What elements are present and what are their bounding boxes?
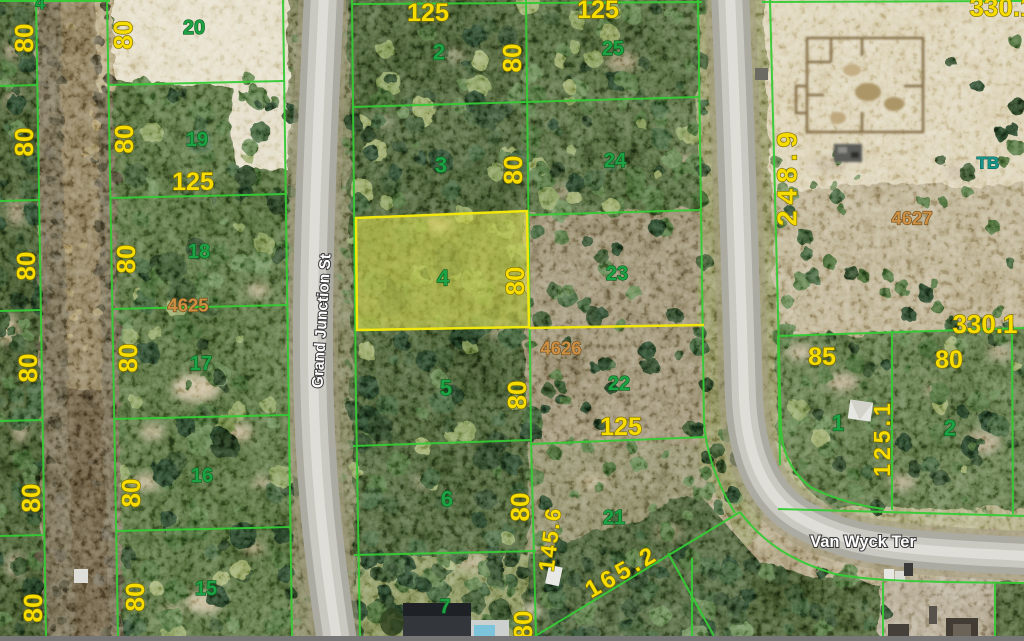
svg-text:15: 15 — [195, 578, 217, 600]
svg-text:80: 80 — [116, 479, 146, 508]
svg-text:24: 24 — [604, 150, 627, 172]
svg-text:80: 80 — [16, 484, 46, 513]
svg-text:2: 2 — [433, 40, 445, 65]
svg-text:80: 80 — [500, 267, 530, 296]
svg-text:17: 17 — [190, 353, 212, 375]
svg-text:80: 80 — [9, 24, 39, 53]
svg-text:3: 3 — [435, 153, 447, 178]
svg-text:248.9: 248.9 — [772, 126, 803, 226]
svg-text:80: 80 — [498, 156, 528, 185]
svg-text:4: 4 — [437, 266, 450, 291]
svg-text:19: 19 — [186, 129, 208, 151]
svg-text:20: 20 — [183, 17, 205, 39]
svg-text:80: 80 — [113, 344, 143, 373]
svg-text:80: 80 — [508, 611, 538, 636]
svg-text:22: 22 — [608, 373, 630, 395]
svg-text:80: 80 — [108, 21, 138, 50]
svg-text:18: 18 — [188, 241, 210, 263]
svg-text:80: 80 — [497, 44, 527, 73]
svg-text:80: 80 — [9, 128, 39, 157]
svg-text:330.1: 330.1 — [952, 309, 1017, 339]
svg-text:5: 5 — [440, 376, 452, 401]
svg-text:80: 80 — [935, 346, 963, 374]
svg-text:80: 80 — [13, 354, 43, 383]
svg-text:125: 125 — [407, 0, 449, 27]
svg-text:80: 80 — [120, 583, 150, 612]
svg-text:1: 1 — [832, 411, 844, 436]
svg-text:125: 125 — [600, 413, 642, 441]
svg-text:16: 16 — [191, 465, 213, 487]
svg-text:80: 80 — [505, 493, 535, 522]
svg-text:330.1: 330.1 — [969, 0, 1024, 22]
svg-text:7: 7 — [439, 596, 450, 618]
svg-text:4627: 4627 — [891, 208, 932, 229]
svg-text:80: 80 — [18, 594, 48, 623]
svg-text:80: 80 — [111, 245, 141, 274]
svg-text:Van Wyck Ter: Van Wyck Ter — [810, 533, 916, 551]
svg-text:4: 4 — [35, 0, 45, 13]
svg-text:25: 25 — [602, 38, 624, 60]
svg-text:80: 80 — [11, 252, 41, 281]
svg-text:21: 21 — [603, 507, 625, 529]
svg-text:85: 85 — [808, 343, 836, 371]
svg-text:125: 125 — [577, 0, 619, 24]
svg-text:TB: TB — [977, 154, 1000, 173]
svg-text:125.1: 125.1 — [869, 399, 895, 477]
svg-text:23: 23 — [606, 263, 628, 285]
svg-text:80: 80 — [502, 381, 532, 410]
svg-text:80: 80 — [109, 125, 139, 154]
svg-text:2: 2 — [944, 416, 956, 441]
svg-text:6: 6 — [441, 487, 453, 512]
svg-text:125: 125 — [172, 168, 214, 196]
svg-text:4626: 4626 — [540, 338, 581, 359]
svg-text:4625: 4625 — [167, 295, 208, 316]
